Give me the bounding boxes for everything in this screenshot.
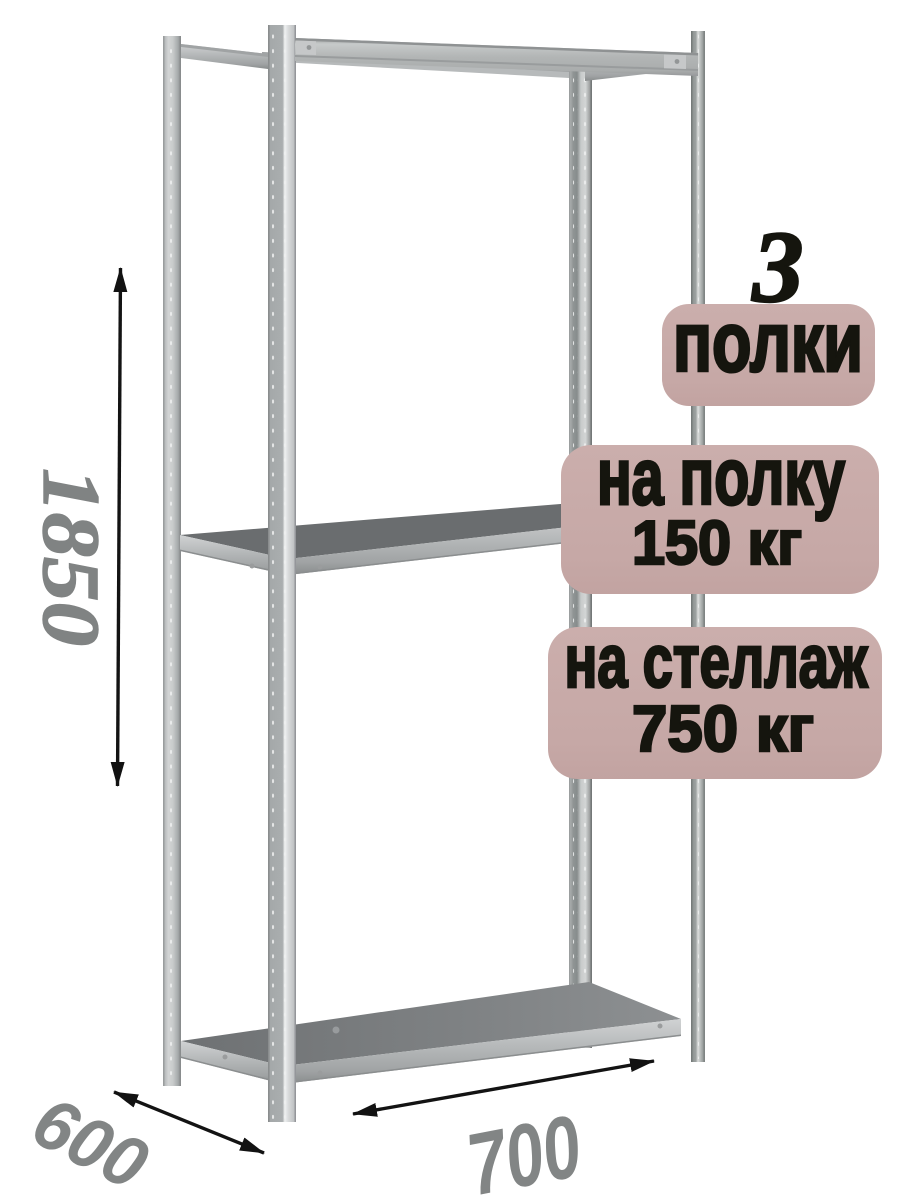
svg-text:1850: 1850 [26,468,117,646]
svg-text:на стеллаж: на стеллаж [565,619,869,703]
svg-text:на полку: на полку [597,432,845,521]
svg-text:150 кг: 150 кг [632,509,802,578]
svg-text:750 кг: 750 кг [632,692,814,765]
svg-text:полки: полки [673,295,863,389]
